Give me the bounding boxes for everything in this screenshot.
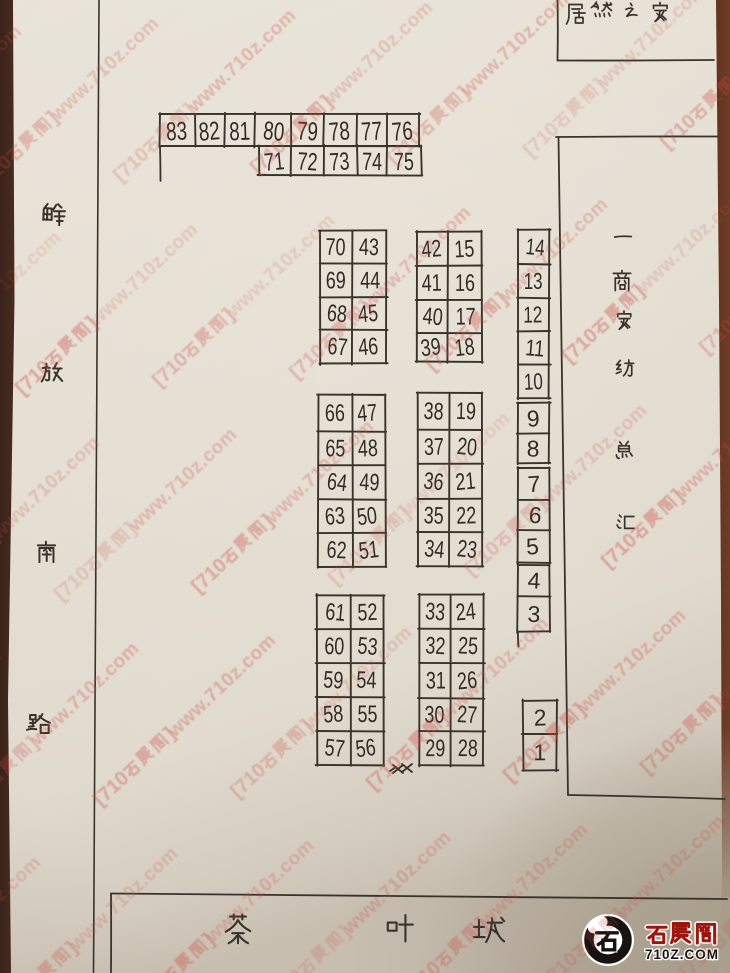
svg-text:15: 15 [454,235,475,263]
svg-text:81: 81 [229,116,251,147]
svg-text:78: 78 [328,115,351,147]
svg-text:22: 22 [456,502,477,530]
svg-text:82: 82 [197,115,221,147]
svg-text:32: 32 [425,632,446,660]
svg-text:31: 31 [426,667,446,694]
svg-text:77: 77 [360,115,383,146]
svg-text:8: 8 [527,435,540,461]
svg-text:52: 52 [357,599,378,627]
svg-text:4: 4 [527,567,541,594]
svg-text:43: 43 [359,234,380,261]
svg-text:73: 73 [329,147,351,176]
svg-text:25: 25 [458,632,479,660]
svg-text:60: 60 [324,633,345,660]
svg-text:11: 11 [524,334,545,362]
svg-text:74: 74 [362,148,382,176]
svg-text:9: 9 [526,405,540,432]
svg-text:63: 63 [324,502,346,531]
svg-text:56: 56 [354,734,377,763]
svg-text:19: 19 [456,398,477,426]
svg-text:41: 41 [421,270,442,297]
svg-text:70: 70 [325,234,346,261]
svg-text:34: 34 [423,535,445,564]
svg-text:46: 46 [357,333,379,361]
svg-text:38: 38 [423,398,444,426]
svg-text:69: 69 [326,267,346,294]
svg-text:57: 57 [323,734,346,763]
svg-text:33: 33 [424,598,446,626]
svg-text:12: 12 [523,301,542,327]
svg-text:2: 2 [533,704,547,730]
svg-text:61: 61 [324,598,346,627]
svg-text:40: 40 [422,303,444,332]
svg-text:10: 10 [523,368,543,395]
svg-text:28: 28 [458,735,478,762]
svg-text:49: 49 [359,469,380,497]
svg-text:29: 29 [425,735,445,762]
svg-text:55: 55 [357,701,377,728]
svg-text:37: 37 [424,434,445,462]
svg-text:24: 24 [455,598,477,627]
svg-text:16: 16 [455,270,475,297]
svg-text:5: 5 [525,533,539,560]
svg-text:72: 72 [297,147,319,176]
svg-text:50: 50 [355,502,378,531]
svg-text:66: 66 [325,400,345,427]
